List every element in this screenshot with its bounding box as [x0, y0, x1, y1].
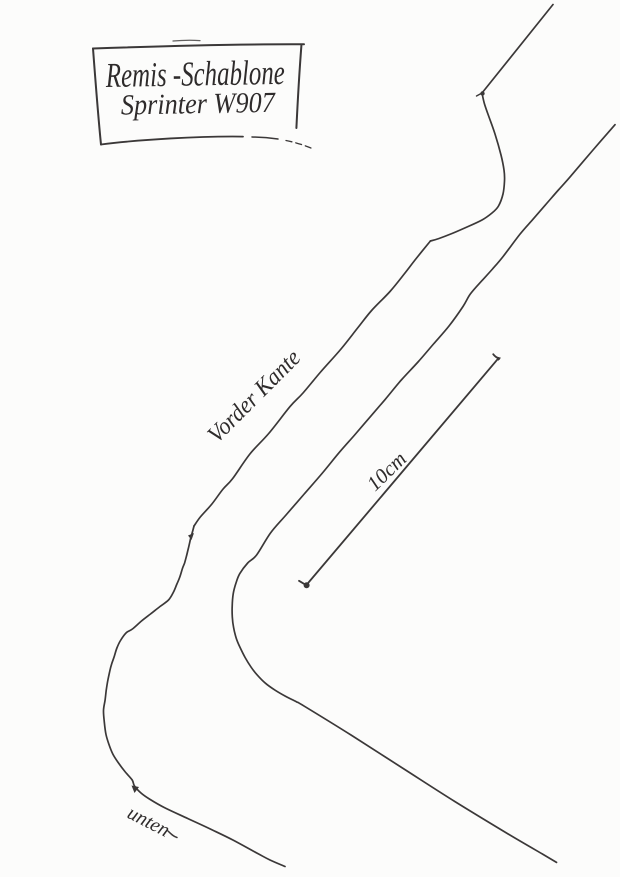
svg-text:Sprinter W907: Sprinter W907 — [121, 87, 277, 122]
svg-text:Vorder Kante: Vorder Kante — [203, 345, 306, 448]
